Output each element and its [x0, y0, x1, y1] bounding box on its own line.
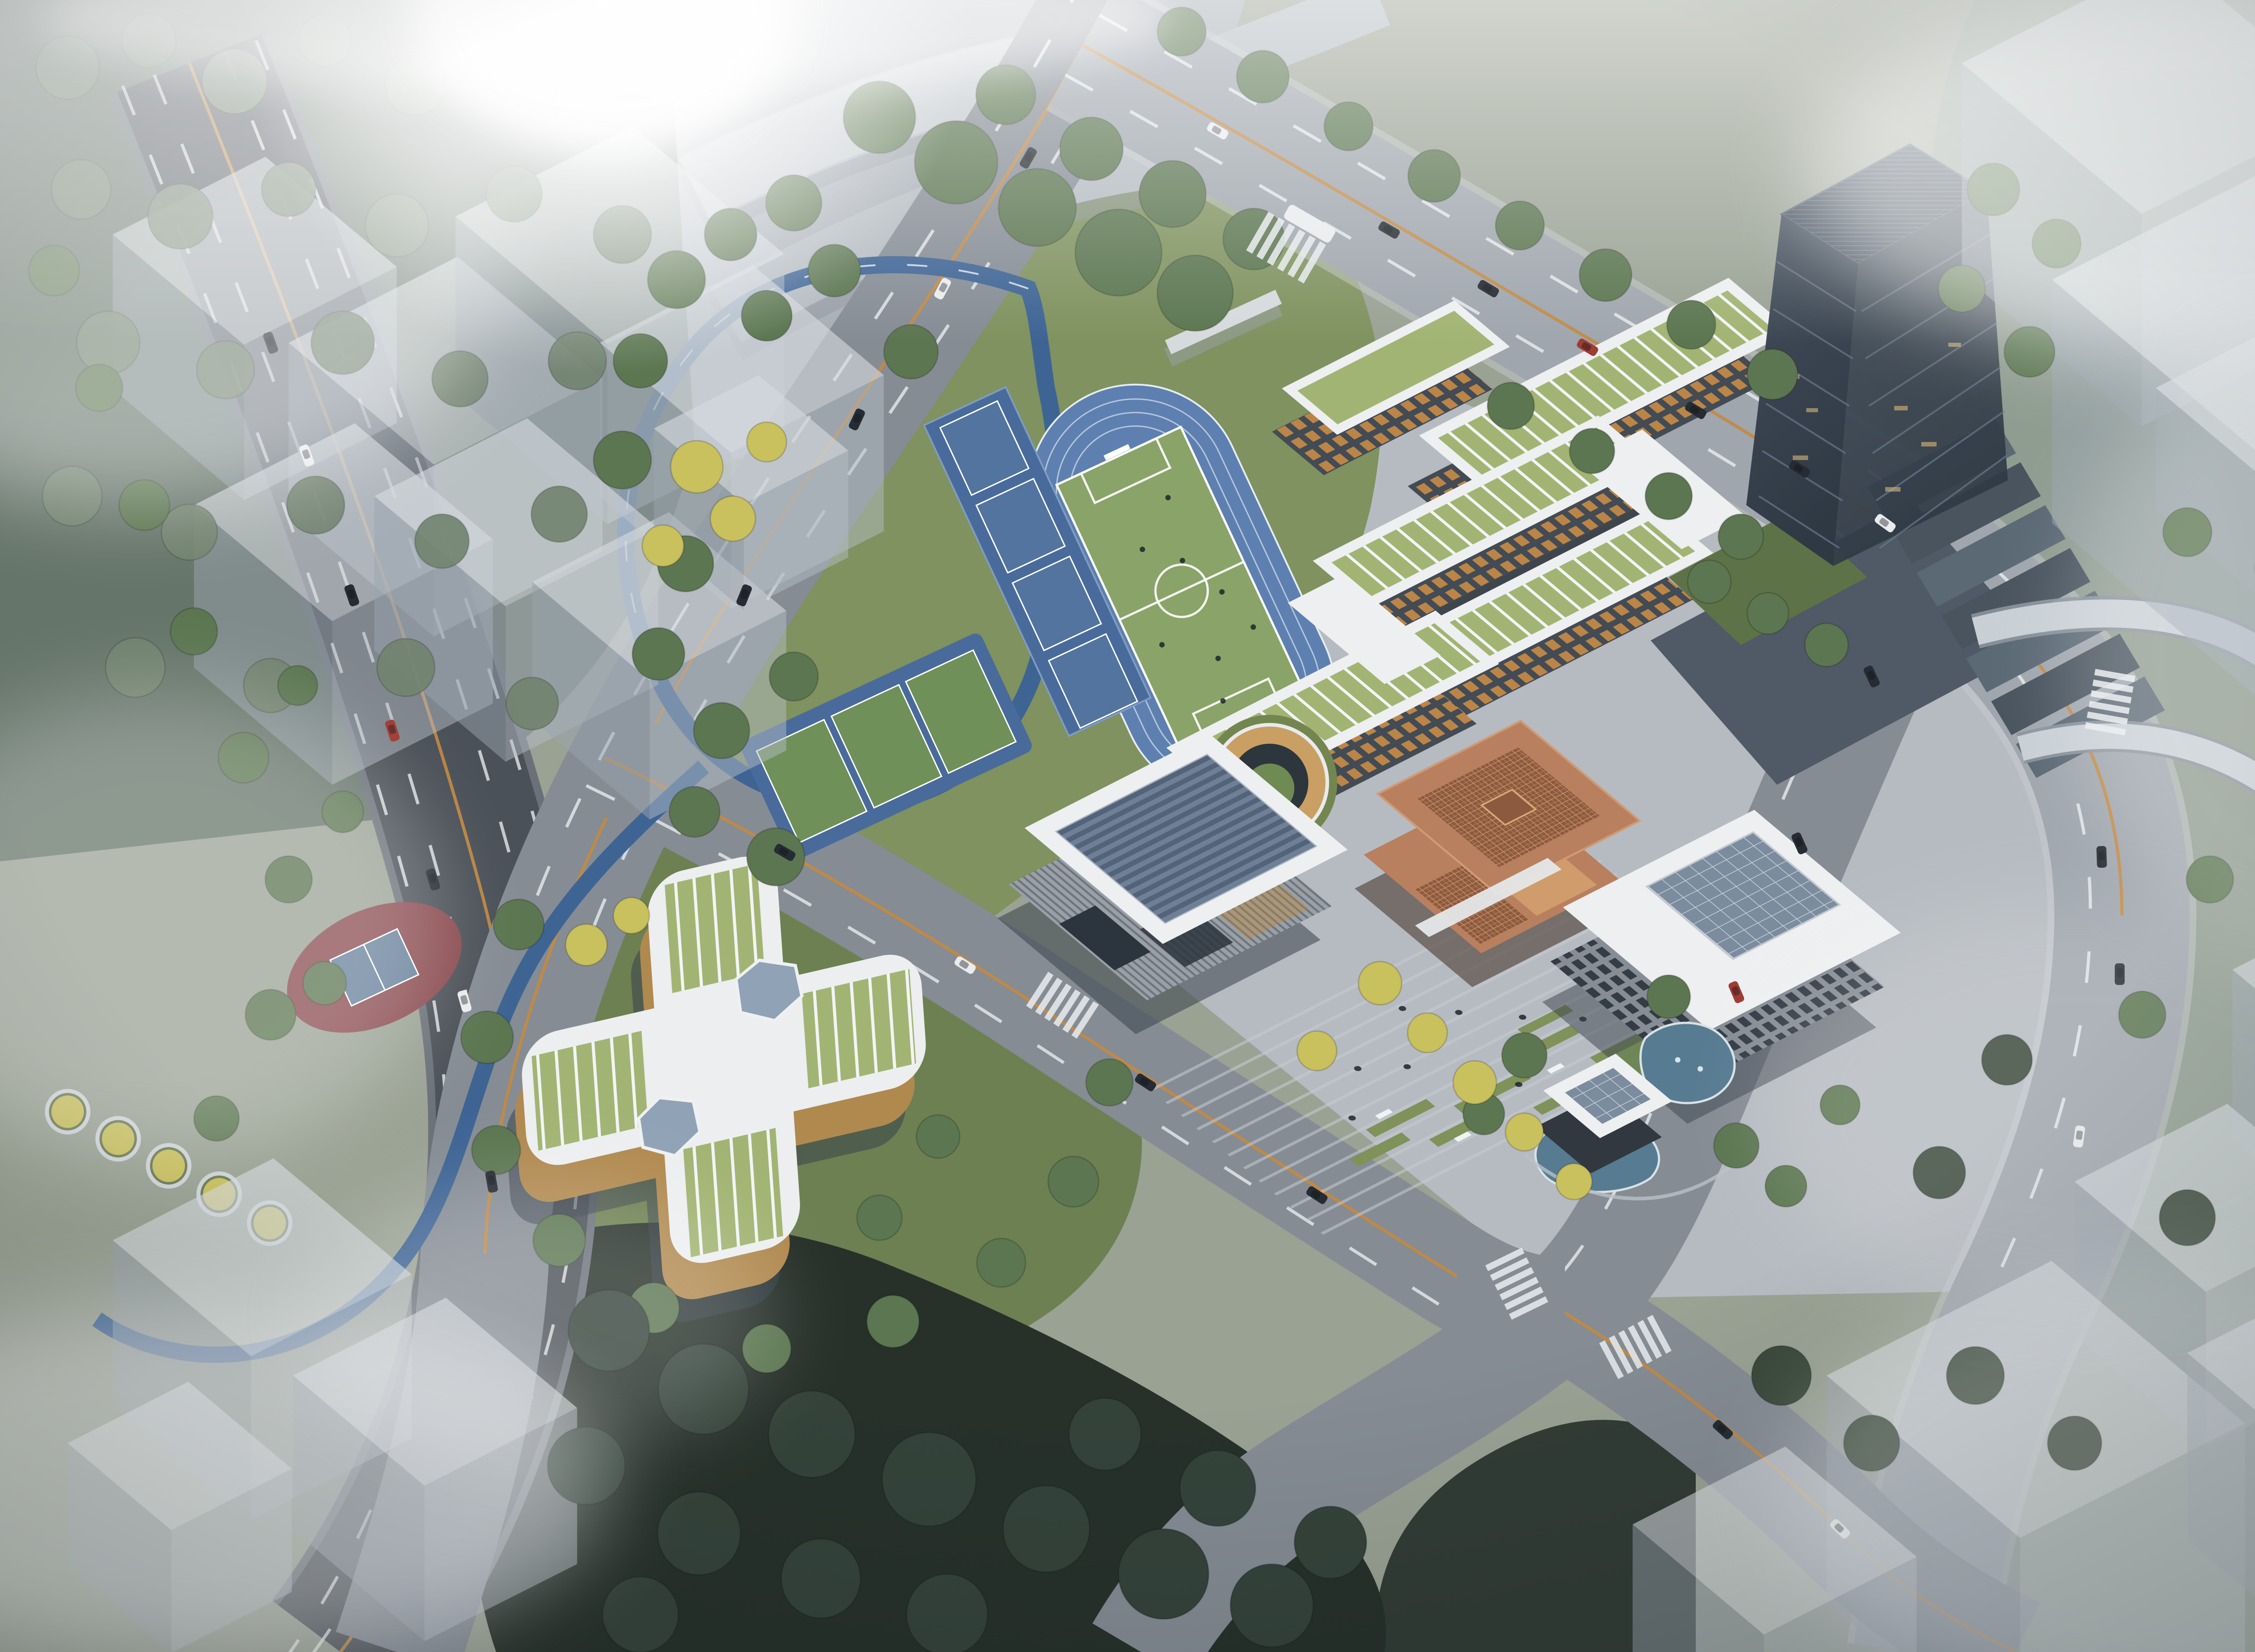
aerial-rendering: Bird's-eye CGI rendering of a school cam… — [0, 0, 2255, 1652]
rendering-canvas: Bird's-eye CGI rendering of a school cam… — [0, 0, 2255, 1652]
atmosphere — [0, 0, 2255, 1652]
